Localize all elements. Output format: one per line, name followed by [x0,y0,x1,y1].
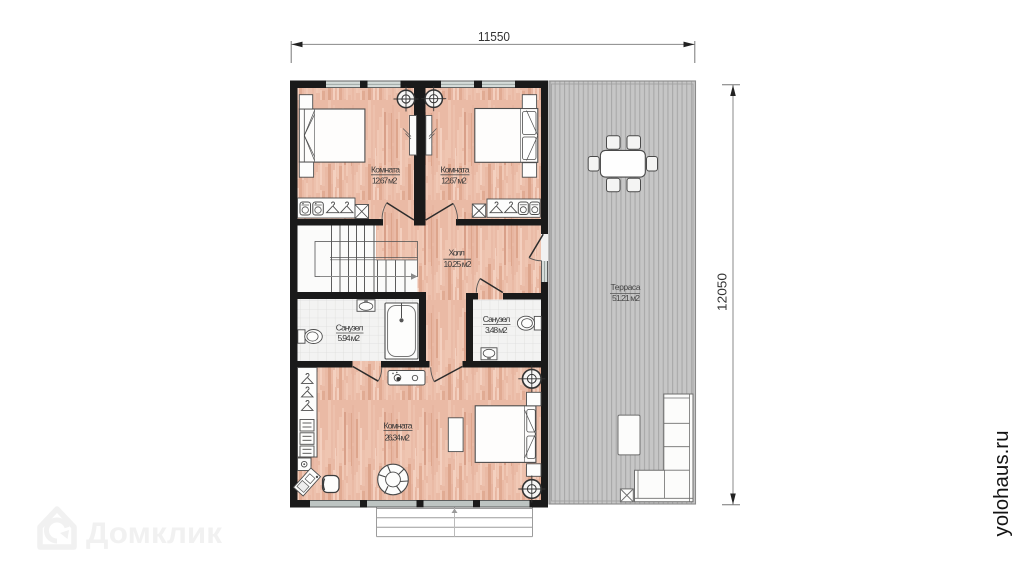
svg-text:3.48 м2: 3.48 м2 [485,325,508,335]
svg-text:12.67 м2: 12.67 м2 [372,175,398,185]
svg-text:11550: 11550 [478,30,510,44]
svg-text:10.25 м2: 10.25 м2 [444,259,472,269]
svg-text:12.67 м2: 12.67 м2 [441,175,467,185]
svg-text:Комната: Комната [384,420,413,430]
svg-text:51.21 м2: 51.21 м2 [612,293,640,303]
svg-text:yolohaus.ru: yolohaus.ru [991,431,1013,537]
svg-text:Комната: Комната [371,165,400,175]
svg-text:Терраса: Терраса [611,282,641,292]
svg-text:Санузел: Санузел [483,314,511,324]
svg-text:12050: 12050 [716,273,730,311]
svg-text:5.94 м2: 5.94 м2 [338,333,361,343]
svg-text:26.34 м2: 26.34 м2 [384,432,410,442]
svg-text:Санузел: Санузел [336,323,364,333]
svg-text:Домклик: Домклик [86,517,223,550]
svg-text:Комната: Комната [441,165,470,175]
svg-text:Холл: Холл [448,248,465,258]
